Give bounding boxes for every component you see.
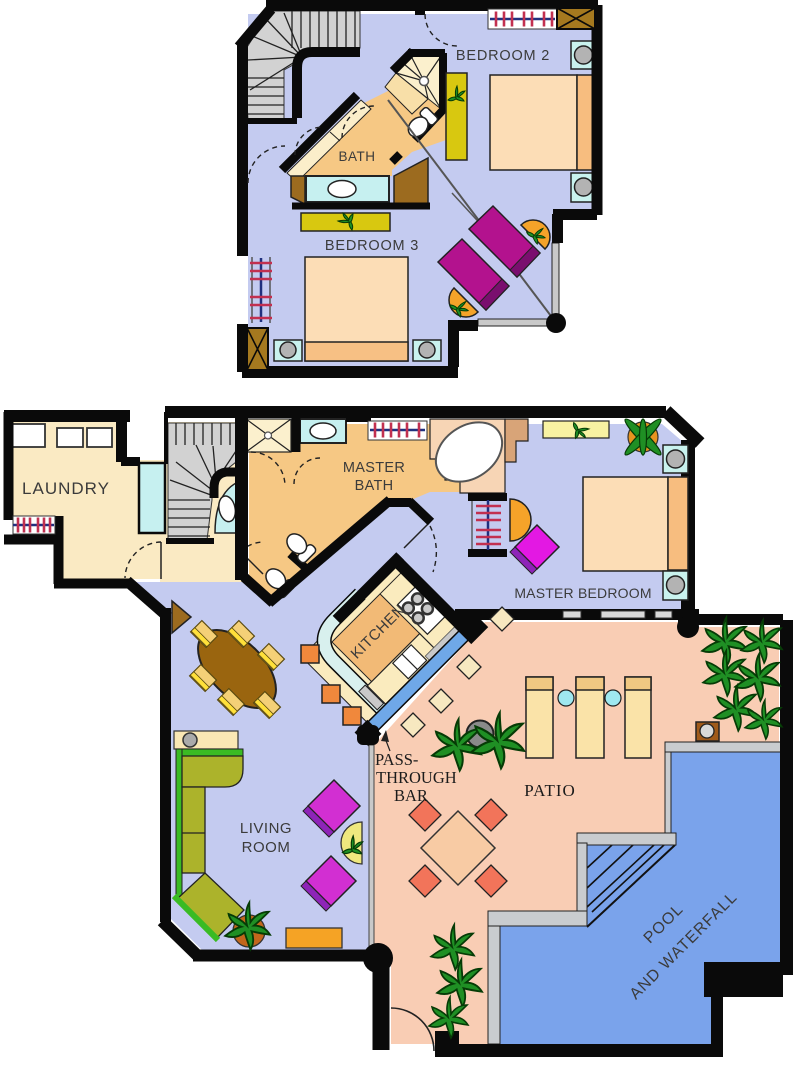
svg-text:PASS-: PASS-: [375, 750, 418, 769]
svg-text:PATIO: PATIO: [524, 781, 576, 800]
svg-text:LIVING: LIVING: [240, 820, 292, 837]
svg-text:BAR: BAR: [394, 786, 428, 805]
svg-text:BATH: BATH: [338, 149, 375, 164]
svg-text:LAUNDRY: LAUNDRY: [22, 479, 110, 498]
svg-text:ROOM: ROOM: [242, 839, 291, 856]
svg-text:BATH: BATH: [355, 478, 394, 494]
svg-text:BEDROOM 3: BEDROOM 3: [325, 238, 419, 254]
svg-text:BEDROOM 2: BEDROOM 2: [456, 48, 550, 64]
svg-text:MASTER BEDROOM: MASTER BEDROOM: [514, 585, 651, 601]
svg-text:MASTER: MASTER: [343, 460, 405, 476]
svg-text:THROUGH: THROUGH: [376, 768, 457, 787]
